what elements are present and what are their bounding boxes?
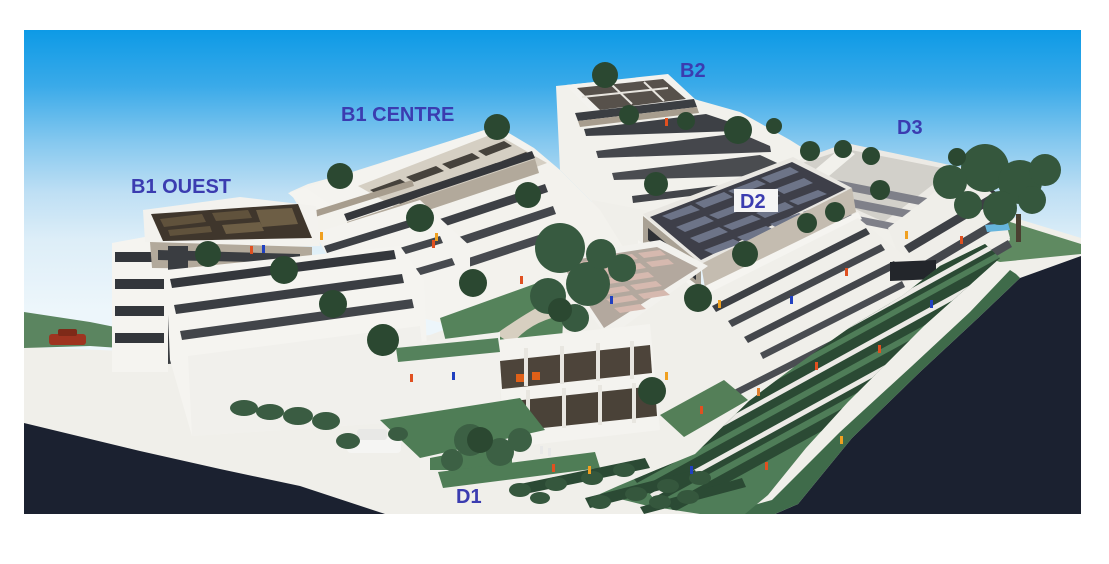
svg-text:B1 OUEST: B1 OUEST [131, 176, 231, 198]
svg-text:D1: D1 [456, 486, 482, 508]
svg-text:D2: D2 [740, 191, 766, 213]
svg-text:B1 CENTRE: B1 CENTRE [341, 104, 454, 126]
svg-text:B2: B2 [680, 60, 706, 82]
svg-text:D3: D3 [897, 117, 923, 139]
